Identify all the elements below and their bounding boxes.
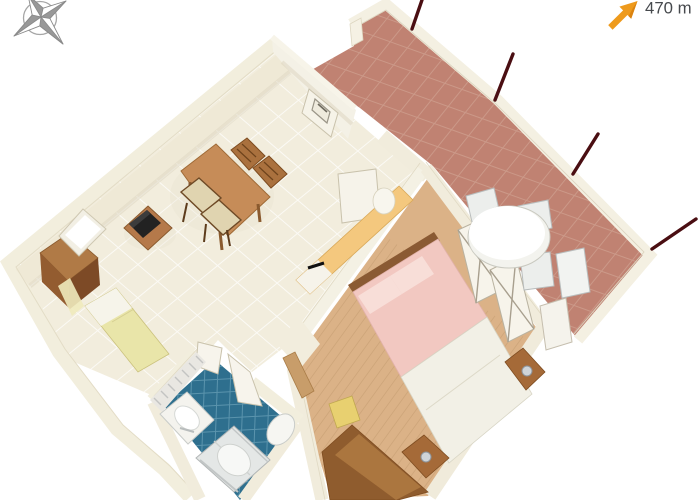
svg-text:470 m: 470 m <box>645 0 692 18</box>
